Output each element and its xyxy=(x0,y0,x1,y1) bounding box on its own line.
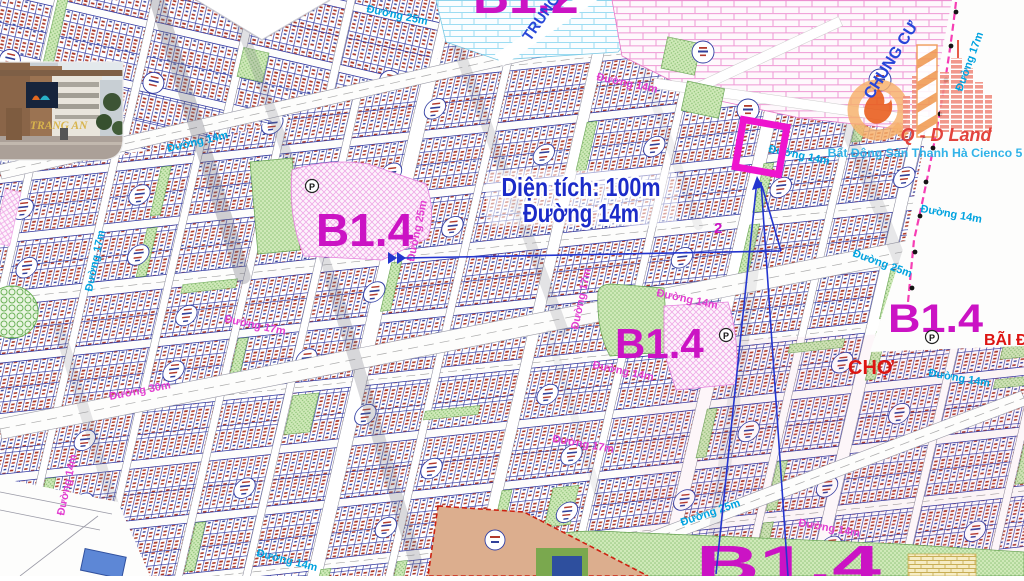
svg-text:TRANG AN: TRANG AN xyxy=(30,120,88,132)
svg-text:B1.4: B1.4 xyxy=(615,320,704,367)
svg-text:Đường 14m: Đường 14m xyxy=(523,198,639,228)
svg-text:P: P xyxy=(929,333,935,343)
svg-text:P: P xyxy=(723,331,729,341)
svg-text:P: P xyxy=(309,182,315,192)
svg-text:CHỢ: CHỢ xyxy=(848,357,895,379)
svg-text:Q - D Land: Q - D Land xyxy=(901,125,993,145)
svg-text:BÃI Đ: BÃI Đ xyxy=(984,329,1024,349)
svg-text:B1.4: B1.4 xyxy=(316,204,414,256)
svg-text:Bất Động Sản Thanh Hà Cienco 5: Bất Động Sản Thanh Hà Cienco 5 xyxy=(828,146,1023,160)
svg-text:2: 2 xyxy=(714,220,722,237)
svg-text:B1.2: B1.2 xyxy=(473,0,579,24)
svg-text:B1.4: B1.4 xyxy=(696,536,881,576)
